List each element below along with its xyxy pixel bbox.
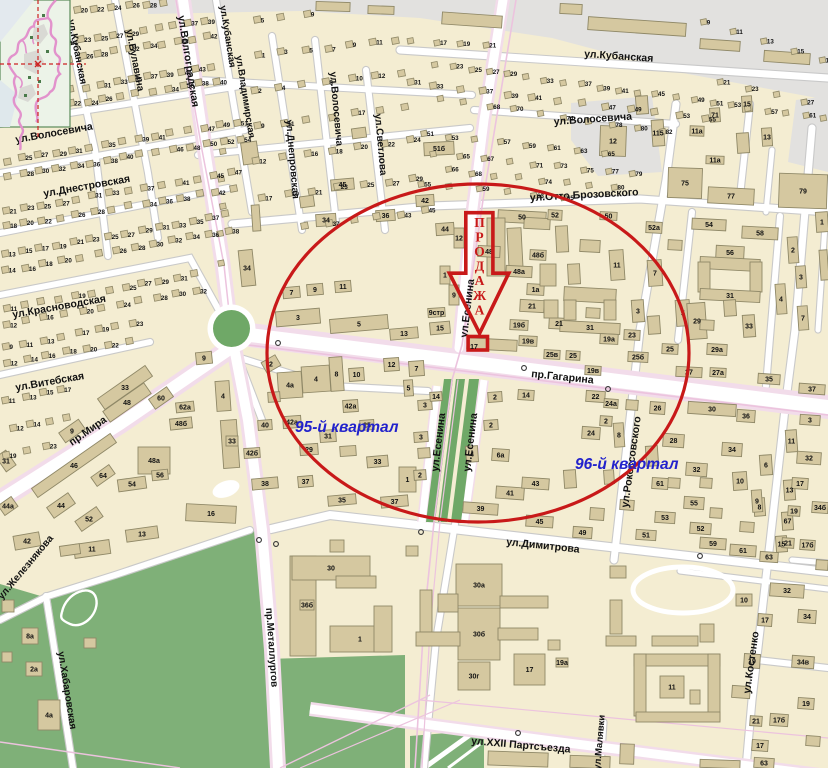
svg-text:28: 28 (670, 438, 678, 445)
svg-text:33: 33 (228, 439, 236, 446)
svg-text:21: 21 (315, 189, 322, 196)
svg-text:4: 4 (282, 85, 286, 92)
svg-text:35: 35 (109, 142, 116, 149)
svg-text:21: 21 (784, 541, 792, 548)
svg-text:63: 63 (760, 761, 768, 768)
svg-text:3: 3 (284, 49, 288, 56)
svg-text:22: 22 (388, 141, 395, 148)
svg-text:2а: 2а (30, 667, 38, 674)
svg-text:16: 16 (29, 266, 36, 273)
svg-text:7: 7 (801, 316, 805, 323)
svg-text:71: 71 (536, 162, 543, 169)
svg-text:27: 27 (493, 69, 500, 76)
svg-text:27: 27 (145, 281, 152, 288)
svg-text:49: 49 (579, 530, 587, 537)
svg-text:9: 9 (261, 123, 265, 130)
svg-text:42: 42 (211, 34, 218, 41)
svg-text:11: 11 (736, 29, 743, 36)
svg-text:40: 40 (220, 79, 227, 86)
svg-text:12: 12 (388, 362, 396, 369)
svg-text:16: 16 (207, 511, 215, 518)
svg-text:8: 8 (335, 372, 339, 379)
svg-text:6а: 6а (497, 453, 505, 460)
svg-text:17: 17 (756, 743, 764, 750)
svg-text:45: 45 (658, 91, 665, 98)
svg-text:12: 12 (455, 236, 463, 243)
svg-text:38: 38 (111, 158, 118, 165)
svg-text:34б: 34б (814, 504, 827, 512)
svg-text:17: 17 (440, 40, 447, 47)
svg-text:39: 39 (208, 19, 215, 26)
svg-text:52а: 52а (648, 225, 660, 232)
svg-text:21: 21 (77, 239, 84, 246)
svg-text:80: 80 (641, 125, 648, 132)
svg-text:14: 14 (522, 393, 530, 400)
svg-text:15: 15 (743, 102, 751, 109)
svg-text:10: 10 (740, 598, 748, 605)
svg-text:29а: 29а (711, 347, 723, 354)
svg-text:1: 1 (358, 637, 362, 644)
svg-text:42: 42 (219, 190, 226, 197)
svg-text:34: 34 (78, 163, 85, 170)
svg-text:36: 36 (212, 232, 219, 239)
svg-text:14: 14 (432, 394, 440, 401)
svg-text:31: 31 (586, 325, 594, 332)
svg-text:77: 77 (612, 169, 619, 176)
svg-text:49: 49 (698, 97, 705, 104)
svg-text:10: 10 (356, 76, 363, 83)
svg-text:33: 33 (113, 190, 120, 197)
svg-text:4: 4 (779, 297, 783, 304)
svg-text:66: 66 (452, 167, 459, 174)
svg-text:3: 3 (799, 275, 803, 282)
svg-text:2: 2 (604, 419, 608, 426)
svg-text:17: 17 (83, 330, 90, 337)
svg-text:41: 41 (622, 88, 629, 95)
svg-text:70: 70 (517, 106, 524, 113)
svg-text:26: 26 (654, 406, 662, 413)
svg-text:34: 34 (243, 266, 251, 273)
svg-text:18: 18 (46, 261, 53, 268)
svg-text:16: 16 (47, 314, 54, 321)
svg-text:Ж: Ж (473, 288, 487, 303)
svg-text:12: 12 (17, 426, 24, 433)
svg-text:9: 9 (313, 287, 317, 294)
svg-text:45: 45 (217, 173, 224, 180)
svg-text:13: 13 (30, 395, 37, 402)
svg-text:12: 12 (378, 73, 385, 80)
svg-text:15: 15 (797, 49, 804, 56)
svg-text:36: 36 (93, 162, 100, 169)
svg-text:59: 59 (483, 186, 490, 193)
svg-text:42а: 42а (345, 404, 357, 411)
svg-text:59: 59 (529, 143, 536, 150)
svg-text:64: 64 (99, 473, 107, 480)
svg-text:55: 55 (690, 501, 698, 508)
svg-text:67: 67 (487, 156, 494, 163)
svg-text:14: 14 (9, 267, 16, 274)
svg-text:73: 73 (561, 163, 568, 170)
svg-text:27: 27 (393, 180, 400, 187)
svg-text:21: 21 (528, 304, 536, 311)
svg-text:13: 13 (763, 135, 771, 142)
svg-text:11а: 11а (709, 158, 720, 165)
svg-text:26: 26 (133, 2, 140, 9)
svg-text:39: 39 (477, 506, 485, 513)
svg-text:9: 9 (311, 12, 315, 19)
svg-text:9: 9 (10, 344, 14, 351)
svg-text:47: 47 (235, 170, 242, 177)
svg-text:4а: 4а (45, 713, 53, 720)
svg-text:Р: Р (475, 230, 483, 245)
svg-text:10: 10 (353, 372, 361, 379)
svg-text:27: 27 (128, 232, 135, 239)
svg-text:30: 30 (327, 566, 335, 573)
svg-text:44: 44 (441, 227, 449, 234)
svg-text:28: 28 (27, 171, 34, 178)
svg-text:34: 34 (150, 201, 157, 208)
svg-text:10: 10 (736, 479, 744, 486)
svg-text:25: 25 (475, 67, 482, 74)
svg-text:44: 44 (57, 503, 65, 510)
svg-text:12: 12 (609, 139, 617, 146)
svg-text:52: 52 (697, 526, 705, 533)
svg-text:13: 13 (138, 532, 146, 539)
svg-text:11: 11 (27, 342, 34, 349)
svg-text:11: 11 (88, 547, 96, 554)
svg-text:24: 24 (587, 431, 595, 438)
svg-text:36: 36 (166, 198, 173, 205)
svg-text:11а: 11а (691, 129, 702, 136)
svg-text:29: 29 (162, 279, 169, 286)
svg-text:75: 75 (587, 168, 594, 175)
svg-text:2: 2 (258, 88, 262, 95)
svg-text:41: 41 (535, 95, 542, 102)
svg-text:20: 20 (361, 144, 368, 151)
svg-text:45: 45 (536, 519, 544, 526)
svg-text:22: 22 (592, 394, 600, 401)
svg-text:19: 19 (802, 701, 810, 708)
svg-text:31: 31 (95, 193, 102, 200)
svg-text:17: 17 (470, 344, 478, 351)
svg-text:56: 56 (726, 250, 734, 257)
svg-text:23: 23 (93, 236, 100, 243)
svg-text:28: 28 (98, 209, 105, 216)
svg-text:36: 36 (382, 213, 390, 220)
svg-text:82: 82 (666, 129, 673, 136)
svg-text:11: 11 (9, 398, 16, 405)
svg-text:39: 39 (167, 72, 174, 79)
svg-text:24: 24 (124, 302, 131, 309)
svg-text:11: 11 (339, 284, 347, 291)
svg-text:28: 28 (150, 3, 157, 10)
svg-text:41: 41 (183, 180, 190, 187)
svg-text:31: 31 (76, 148, 83, 155)
svg-text:8: 8 (758, 505, 762, 512)
svg-text:25: 25 (367, 182, 374, 189)
svg-text:48: 48 (123, 400, 131, 407)
svg-text:27: 27 (116, 33, 123, 40)
svg-text:24а: 24а (605, 401, 617, 408)
svg-text:13: 13 (786, 488, 794, 495)
svg-text:42: 42 (23, 539, 31, 546)
svg-text:29: 29 (146, 228, 153, 235)
svg-text:63: 63 (765, 555, 773, 562)
svg-text:31: 31 (726, 293, 734, 300)
svg-text:37: 37 (151, 74, 158, 81)
svg-text:П: П (474, 215, 485, 230)
svg-text:24: 24 (115, 5, 122, 12)
svg-text:30: 30 (708, 407, 716, 414)
svg-text:12: 12 (259, 158, 266, 165)
svg-text:54: 54 (705, 222, 713, 229)
svg-text:33: 33 (121, 79, 128, 86)
svg-text:25: 25 (101, 35, 108, 42)
svg-text:28: 28 (161, 295, 168, 302)
svg-text:23: 23 (136, 321, 143, 328)
svg-text:53: 53 (683, 113, 690, 120)
svg-text:25в: 25в (546, 352, 559, 359)
svg-text:25: 25 (569, 353, 577, 360)
svg-text:23: 23 (28, 205, 35, 212)
svg-text:61: 61 (809, 113, 816, 120)
svg-text:32: 32 (175, 237, 182, 244)
svg-text:50: 50 (210, 141, 217, 148)
svg-text:19а: 19а (603, 337, 615, 344)
svg-text:17б: 17б (801, 542, 814, 550)
svg-text:61: 61 (554, 145, 561, 152)
svg-text:27: 27 (807, 100, 814, 107)
svg-text:33: 33 (547, 78, 554, 85)
svg-text:31: 31 (414, 80, 421, 87)
svg-text:61: 61 (739, 548, 747, 555)
svg-text:31: 31 (2, 459, 10, 466)
svg-text:А: А (475, 303, 485, 318)
svg-text:4а: 4а (286, 383, 294, 390)
svg-text:2: 2 (489, 423, 493, 430)
svg-text:34: 34 (151, 43, 158, 50)
svg-text:51: 51 (427, 131, 434, 138)
svg-text:8: 8 (617, 433, 621, 440)
svg-text:34: 34 (172, 87, 179, 94)
svg-text:26: 26 (79, 212, 86, 219)
svg-text:20: 20 (65, 257, 72, 264)
svg-text:35: 35 (197, 219, 204, 226)
svg-text:17: 17 (42, 245, 49, 252)
svg-text:16: 16 (311, 151, 318, 158)
svg-text:25: 25 (26, 155, 33, 162)
svg-text:31: 31 (104, 82, 111, 89)
svg-text:33: 33 (437, 83, 444, 90)
svg-text:9: 9 (707, 19, 711, 26)
svg-text:68: 68 (493, 104, 500, 111)
svg-text:51: 51 (642, 533, 650, 540)
svg-text:30: 30 (157, 242, 164, 249)
svg-text:1: 1 (820, 220, 824, 227)
svg-text:19б: 19б (513, 322, 526, 330)
svg-text:58: 58 (756, 231, 764, 238)
svg-text:30б: 30б (473, 631, 486, 639)
svg-text:41: 41 (506, 491, 514, 498)
svg-text:37: 37 (191, 21, 198, 28)
svg-text:51: 51 (716, 100, 723, 107)
svg-text:25: 25 (666, 347, 674, 354)
svg-text:46: 46 (177, 147, 184, 154)
svg-text:32: 32 (59, 166, 66, 173)
svg-text:37: 37 (302, 479, 310, 486)
svg-text:54: 54 (128, 482, 136, 489)
svg-text:40: 40 (261, 423, 269, 430)
svg-text:35: 35 (338, 498, 346, 505)
svg-text:28: 28 (139, 245, 146, 252)
svg-text:30: 30 (42, 168, 49, 175)
svg-text:27а: 27а (712, 370, 724, 377)
svg-text:14: 14 (31, 357, 38, 364)
svg-text:49: 49 (223, 122, 230, 129)
svg-text:56: 56 (156, 473, 164, 480)
svg-text:26: 26 (106, 96, 113, 103)
svg-text:4: 4 (314, 377, 318, 384)
svg-text:33: 33 (179, 223, 186, 230)
svg-text:43: 43 (199, 67, 206, 74)
svg-text:3: 3 (808, 418, 812, 425)
svg-text:43: 43 (405, 213, 412, 220)
svg-text:51б: 51б (433, 145, 446, 153)
svg-text:36б: 36б (301, 602, 314, 610)
svg-text:52: 52 (551, 213, 559, 220)
svg-text:61: 61 (656, 481, 664, 488)
svg-text:26: 26 (120, 248, 127, 255)
svg-text:22: 22 (45, 218, 52, 225)
svg-text:38: 38 (261, 481, 269, 488)
svg-text:Д: Д (475, 259, 485, 274)
svg-text:48: 48 (194, 145, 201, 152)
svg-text:13: 13 (9, 251, 16, 258)
svg-text:20: 20 (87, 309, 94, 316)
svg-text:20: 20 (27, 220, 34, 227)
svg-text:22: 22 (97, 7, 104, 14)
svg-text:19: 19 (790, 509, 798, 516)
svg-text:21: 21 (10, 208, 17, 215)
svg-text:15: 15 (26, 248, 33, 255)
svg-text:24: 24 (414, 137, 421, 144)
svg-text:29: 29 (416, 176, 423, 183)
svg-text:52: 52 (228, 139, 235, 146)
svg-text:39: 39 (512, 93, 519, 100)
svg-text:9: 9 (202, 356, 206, 363)
svg-text:62а: 62а (179, 405, 191, 412)
svg-text:25: 25 (44, 204, 51, 211)
svg-text:31: 31 (163, 224, 170, 231)
svg-text:11: 11 (788, 439, 796, 446)
svg-text:29: 29 (510, 71, 517, 78)
svg-text:28: 28 (101, 51, 108, 58)
svg-text:57: 57 (771, 109, 778, 116)
svg-text:5: 5 (261, 17, 265, 24)
svg-text:9: 9 (353, 42, 357, 49)
svg-text:34: 34 (728, 447, 736, 454)
svg-text:37: 37 (808, 387, 816, 394)
svg-text:24: 24 (92, 100, 99, 107)
svg-text:21: 21 (489, 43, 496, 50)
svg-text:15: 15 (47, 390, 54, 397)
svg-text:А: А (475, 273, 485, 288)
svg-text:23: 23 (456, 64, 463, 71)
svg-text:30г: 30г (469, 674, 480, 681)
svg-text:39: 39 (142, 136, 149, 143)
svg-text:17: 17 (265, 195, 272, 202)
svg-text:30а: 30а (473, 583, 485, 590)
svg-text:47: 47 (208, 126, 215, 133)
svg-text:25: 25 (112, 234, 119, 241)
svg-text:38: 38 (202, 80, 209, 87)
svg-text:34в: 34в (797, 660, 810, 667)
svg-text:37: 37 (391, 499, 399, 506)
svg-text:17: 17 (761, 618, 769, 625)
svg-text:71: 71 (711, 113, 719, 120)
svg-text:68: 68 (475, 171, 482, 178)
svg-text:34: 34 (322, 218, 330, 225)
svg-text:3: 3 (636, 309, 640, 316)
svg-text:36: 36 (742, 414, 750, 421)
svg-text:1а: 1а (532, 287, 540, 294)
svg-text:57: 57 (504, 139, 511, 146)
svg-text:59: 59 (709, 541, 717, 548)
svg-text:19в: 19в (522, 339, 535, 346)
svg-text:37: 37 (148, 185, 155, 192)
svg-text:95-й квартал: 95-й квартал (295, 419, 399, 436)
svg-text:42б: 42б (246, 450, 259, 458)
svg-text:11: 11 (668, 685, 676, 692)
svg-text:3: 3 (296, 315, 300, 322)
svg-text:18: 18 (10, 223, 17, 230)
svg-text:32: 32 (693, 467, 701, 474)
svg-text:26: 26 (87, 54, 94, 61)
svg-text:21: 21 (555, 321, 563, 328)
svg-text:37: 37 (585, 81, 592, 88)
svg-text:52: 52 (85, 517, 93, 524)
svg-text:17: 17 (796, 481, 804, 488)
svg-text:29: 29 (693, 319, 701, 326)
svg-text:2: 2 (791, 248, 795, 255)
svg-text:38: 38 (184, 196, 191, 203)
svg-text:9: 9 (755, 499, 759, 506)
svg-text:34: 34 (193, 234, 200, 241)
svg-text:5: 5 (407, 386, 411, 393)
svg-text:48б: 48б (175, 420, 188, 428)
svg-text:63: 63 (581, 148, 588, 155)
svg-text:37: 37 (212, 215, 219, 222)
svg-text:33: 33 (121, 385, 129, 392)
svg-text:1: 1 (443, 273, 447, 280)
svg-text:65: 65 (463, 154, 470, 161)
svg-text:8а: 8а (26, 634, 34, 641)
svg-text:37: 37 (486, 88, 493, 95)
svg-text:16: 16 (49, 353, 56, 360)
svg-text:17: 17 (358, 110, 365, 117)
svg-text:30: 30 (179, 291, 186, 298)
svg-text:23: 23 (628, 333, 636, 340)
svg-text:74: 74 (545, 179, 552, 186)
svg-text:53: 53 (452, 135, 459, 142)
svg-text:115: 115 (652, 131, 663, 138)
svg-text:20: 20 (81, 7, 88, 14)
svg-text:23: 23 (752, 86, 759, 93)
svg-text:7: 7 (653, 271, 657, 278)
svg-text:67: 67 (784, 519, 792, 526)
svg-text:44а: 44а (2, 504, 14, 511)
svg-text:40: 40 (127, 154, 134, 161)
